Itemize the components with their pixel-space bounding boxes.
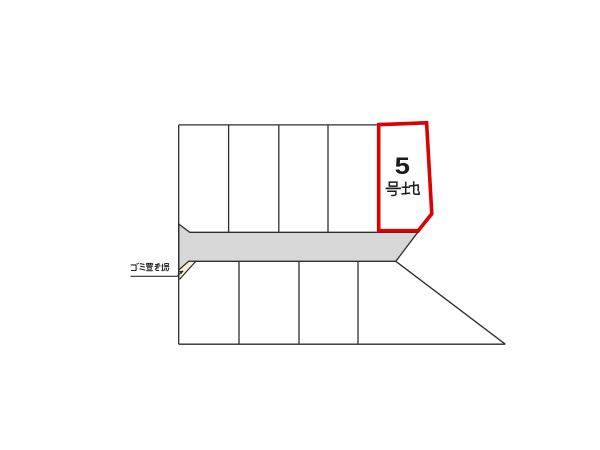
svg-text:5: 5 (395, 153, 410, 179)
